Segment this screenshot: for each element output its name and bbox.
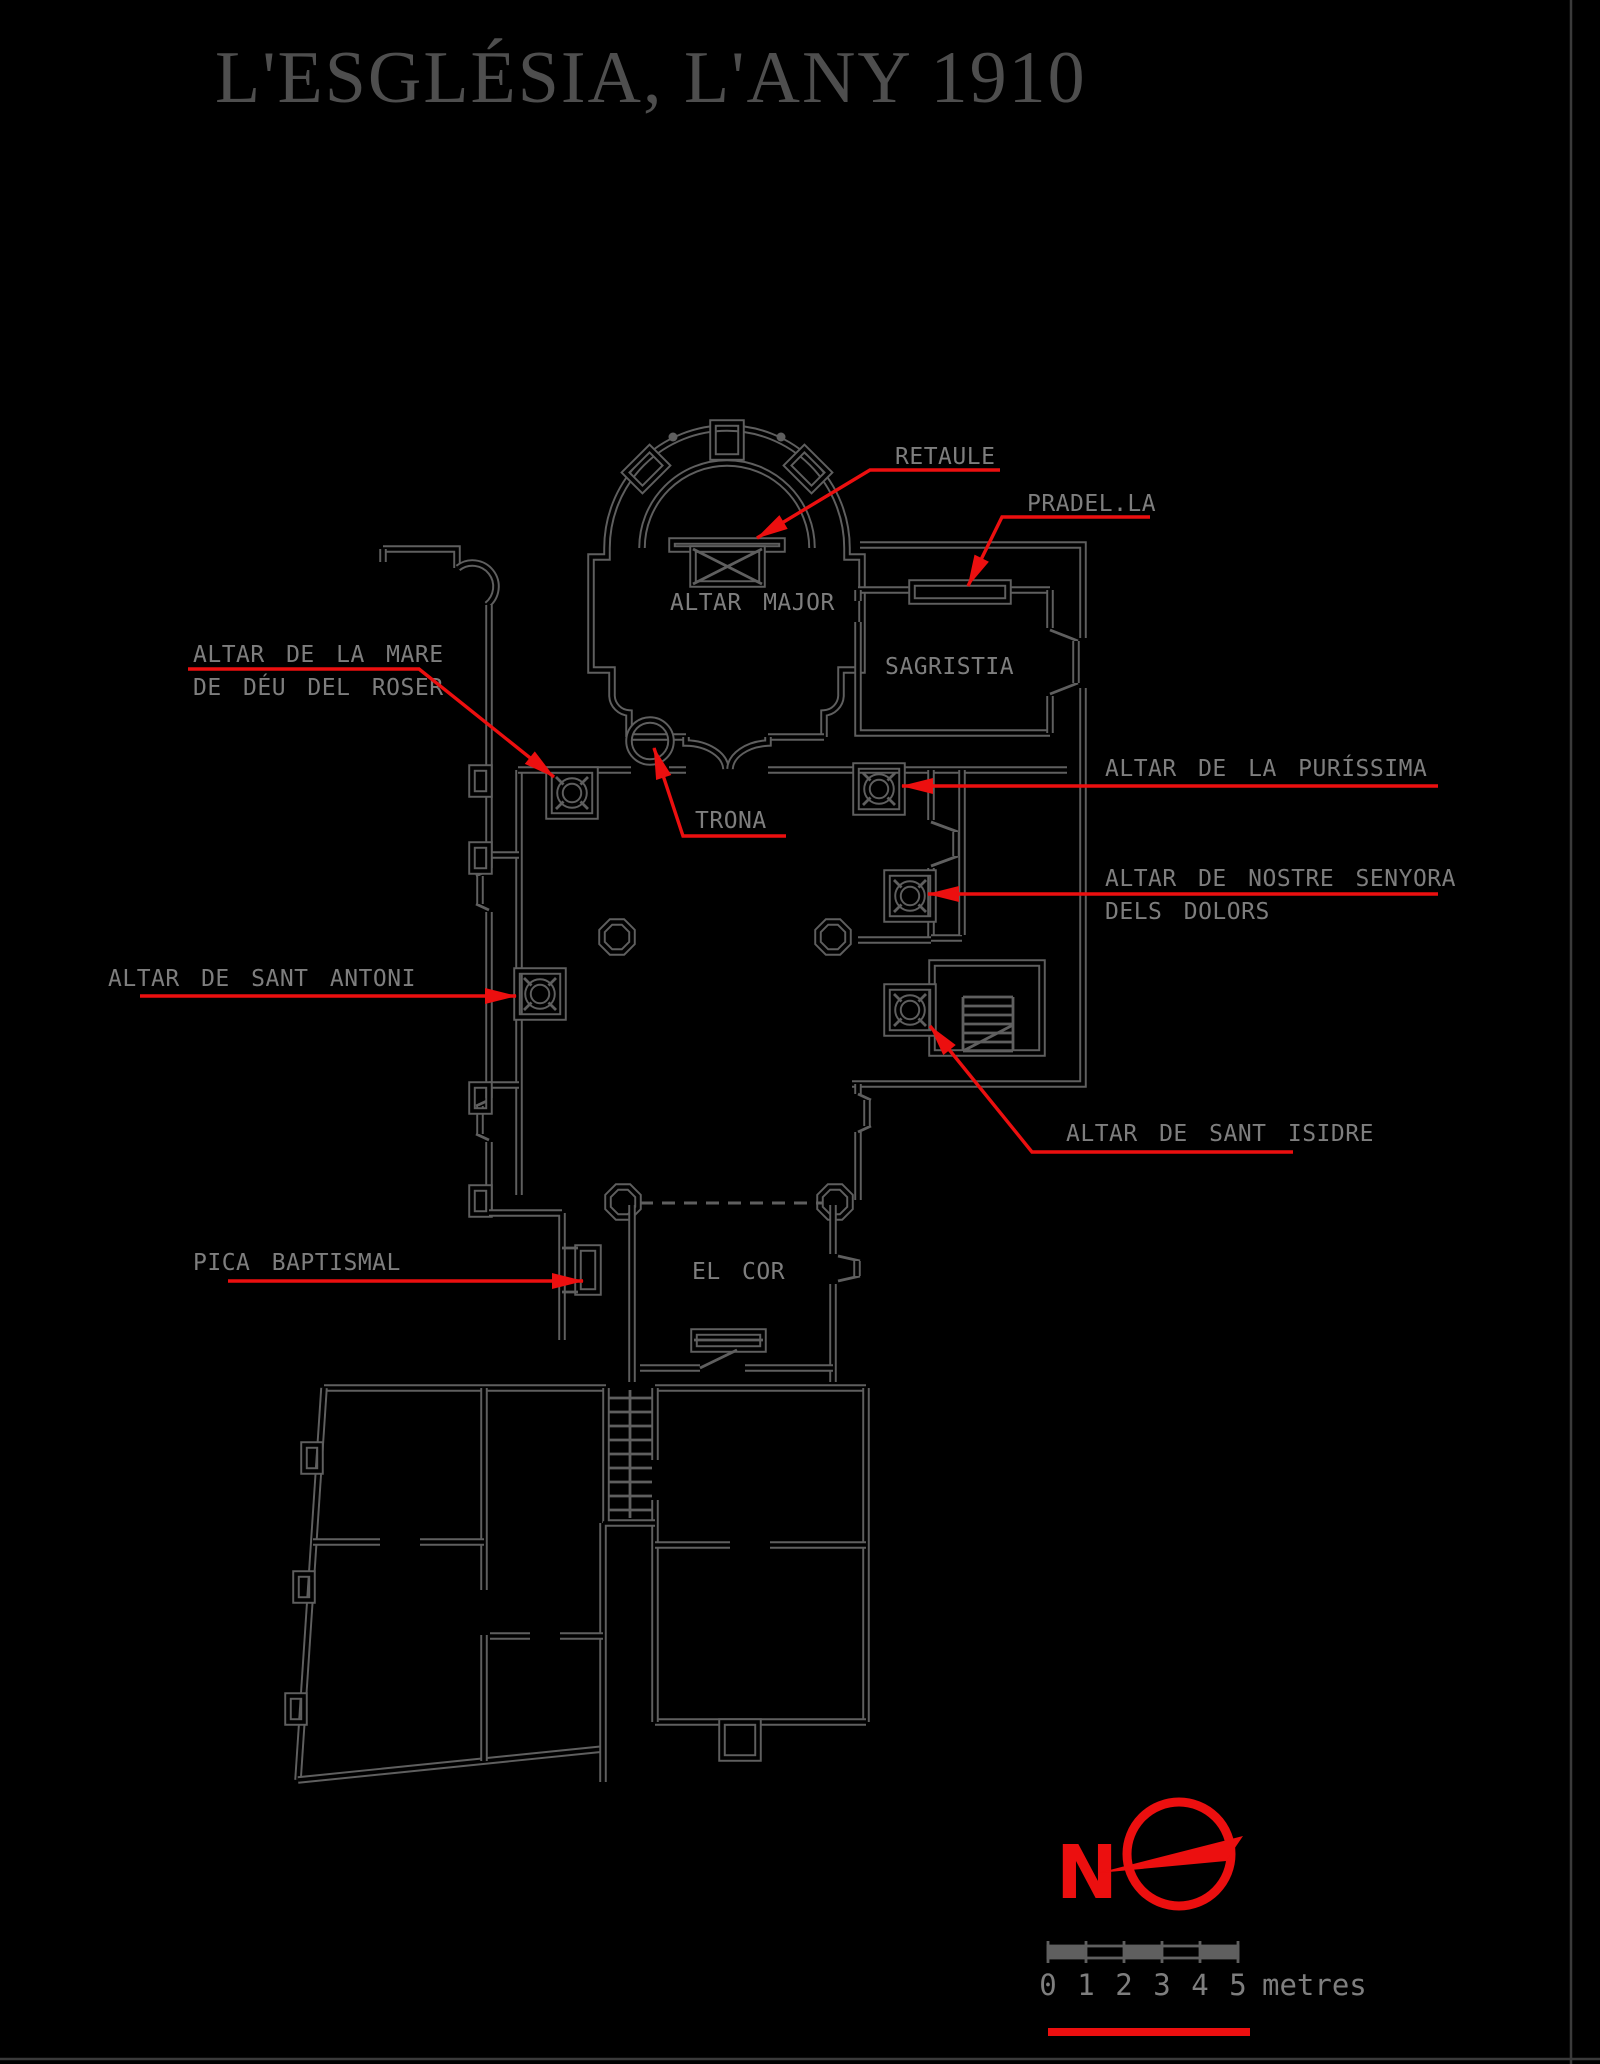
cor-room	[489, 1203, 860, 1382]
floor-plan-svg: L'ESGLÉSIA, L'ANY 1910 ALTAR MAJOR	[0, 0, 1600, 2064]
scale-unit-label: metres	[1262, 1968, 1367, 2002]
roser-label-line1: ALTAR DE LA MARE	[193, 642, 444, 668]
altar-icon-dolors	[887, 873, 933, 919]
altar-major-label: ALTAR MAJOR	[670, 590, 835, 616]
baptismal-font-niche	[578, 1248, 598, 1292]
annotation-pica: PICA BAPTISMAL	[193, 1250, 583, 1281]
roser-label-line2: DE DÉU DEL ROSER	[193, 673, 444, 701]
staircase-lower	[608, 1390, 652, 1518]
compass-needle	[1098, 1836, 1243, 1873]
isidre-label: ALTAR DE SANT ISIDRE	[1066, 1121, 1374, 1147]
annotation-antoni: ALTAR DE SANT ANTONI	[108, 966, 516, 996]
nave-piers	[602, 922, 850, 1217]
altar-icon-sant-antoni	[517, 971, 563, 1017]
lower-building	[288, 1388, 866, 1782]
scale-tick-4: 4	[1191, 1968, 1208, 2002]
pica-label: PICA BAPTISMAL	[193, 1250, 401, 1276]
apse	[607, 423, 847, 548]
floor-plan-page: L'ESGLÉSIA, L'ANY 1910 ALTAR MAJOR	[0, 0, 1600, 2064]
scale-tick-3: 3	[1153, 1968, 1170, 2002]
pradella-leader	[968, 517, 1150, 586]
dolors-label-line2: DELS DOLORS	[1105, 899, 1270, 925]
scale-tick-2: 2	[1115, 1968, 1132, 2002]
scale-tick-5: 5	[1229, 1968, 1246, 2002]
scale-bar: 0 1 2 3 4 5 metres	[1039, 1941, 1367, 2002]
scale-tick-0: 0	[1039, 1968, 1056, 2002]
annotation-dolors: ALTAR DE NOSTRE SENYORA DELS DOLORS	[928, 866, 1456, 925]
north-letter: N	[1056, 1830, 1118, 1916]
trona-label: TRONA	[695, 808, 767, 834]
el-cor-label: EL COR	[692, 1259, 785, 1285]
dolors-label-line1: ALTAR DE NOSTRE SENYORA	[1105, 866, 1456, 892]
bottom-red-bar	[1048, 2028, 1250, 2036]
altar-icon-roser	[549, 770, 595, 816]
purissima-label: ALTAR DE LA PURÍSSIMA	[1105, 754, 1427, 782]
north-compass: N	[1056, 1802, 1243, 1916]
annotation-isidre: ALTAR DE SANT ISIDRE	[930, 1026, 1374, 1152]
retaule-leader	[757, 470, 1000, 538]
pradella-label: PRADEL.LA	[1027, 491, 1156, 517]
sagristia-label: SAGRISTIA	[885, 654, 1014, 680]
altar-icon-sant-isidre	[887, 987, 933, 1033]
scale-tick-1: 1	[1077, 1968, 1094, 2002]
annotation-roser: ALTAR DE LA MARE DE DÉU DEL ROSER	[188, 642, 554, 777]
retaule-label: RETAULE	[895, 444, 995, 470]
plan-title: L'ESGLÉSIA, L'ANY 1910	[215, 37, 1087, 119]
altar-major-symbol	[672, 541, 782, 584]
annotation-pradella: PRADEL.LA	[968, 491, 1156, 586]
pradella-niche	[912, 583, 1008, 601]
antoni-label: ALTAR DE SANT ANTONI	[108, 966, 416, 992]
